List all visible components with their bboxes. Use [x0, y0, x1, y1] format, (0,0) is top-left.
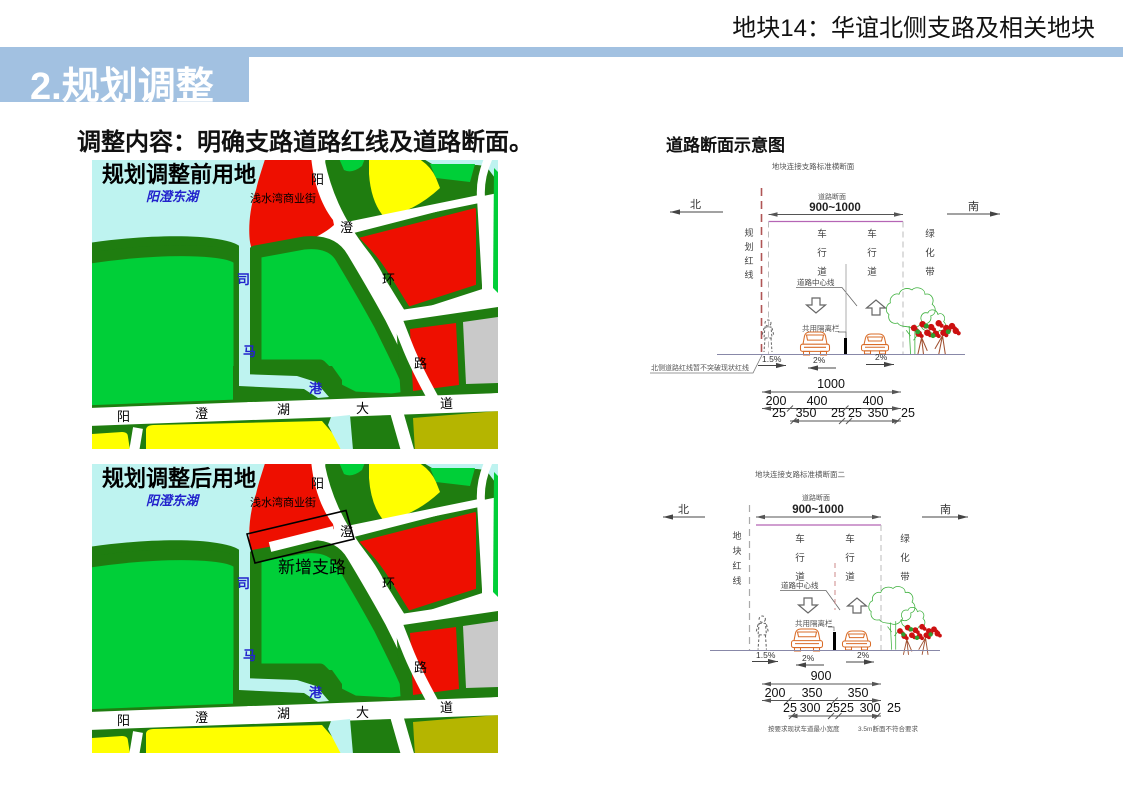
svg-text:行: 行	[845, 552, 855, 564]
svg-text:行: 行	[817, 247, 827, 259]
svg-text:900~1000: 900~1000	[809, 202, 861, 214]
svg-text:道: 道	[817, 266, 827, 278]
svg-text:司: 司	[237, 272, 250, 287]
svg-text:道路断面: 道路断面	[802, 493, 830, 502]
svg-text:道: 道	[845, 571, 855, 583]
svg-text:车: 车	[795, 533, 805, 545]
svg-text:2%: 2%	[875, 352, 888, 362]
svg-text:浅水湾商业街: 浅水湾商业街	[250, 495, 316, 509]
svg-text:南: 南	[940, 503, 951, 516]
svg-text:900~1000: 900~1000	[792, 504, 844, 516]
svg-text:道: 道	[440, 396, 453, 411]
svg-text:地块连接支路标准横断面: 地块连接支路标准横断面	[772, 161, 855, 171]
svg-text:澄: 澄	[340, 220, 353, 235]
svg-text:澄: 澄	[340, 524, 353, 539]
svg-text:湖: 湖	[277, 402, 290, 417]
svg-text:车: 车	[845, 533, 855, 545]
svg-text:25: 25	[840, 701, 854, 715]
svg-text:块: 块	[732, 545, 741, 556]
svg-text:300: 300	[800, 701, 821, 715]
svg-text:25: 25	[826, 701, 840, 715]
svg-text:车: 车	[817, 228, 827, 240]
svg-text:1.5%: 1.5%	[756, 650, 776, 660]
svg-text:25: 25	[901, 406, 915, 420]
svg-text:线: 线	[744, 269, 753, 280]
svg-text:25: 25	[772, 406, 786, 420]
svg-text:司: 司	[237, 576, 250, 591]
svg-text:港: 港	[309, 381, 323, 396]
svg-text:规: 规	[744, 228, 753, 238]
svg-text:200: 200	[765, 686, 786, 700]
svg-text:25: 25	[848, 406, 862, 420]
svg-text:路: 路	[414, 356, 427, 371]
svg-text:线: 线	[732, 575, 741, 586]
svg-text:浅水湾商业街: 浅水湾商业街	[250, 191, 316, 205]
svg-text:阳澄东湖: 阳澄东湖	[146, 493, 201, 508]
svg-text:环: 环	[382, 576, 395, 591]
svg-text:2%: 2%	[802, 653, 815, 663]
svg-text:划: 划	[744, 241, 753, 252]
svg-text:1.5%: 1.5%	[762, 354, 782, 364]
svg-text:行: 行	[867, 247, 877, 259]
svg-text:带: 带	[925, 267, 935, 278]
svg-text:阳澄东湖: 阳澄东湖	[146, 189, 201, 204]
svg-text:南: 南	[968, 200, 979, 213]
svg-text:绿: 绿	[900, 533, 910, 545]
svg-text:道路断面: 道路断面	[818, 192, 846, 201]
svg-text:道: 道	[867, 266, 877, 278]
svg-text:澄: 澄	[195, 710, 208, 725]
svg-text:2%: 2%	[857, 650, 870, 660]
svg-text:350: 350	[868, 406, 889, 420]
svg-text:路: 路	[414, 660, 427, 675]
svg-text:25: 25	[831, 406, 845, 420]
svg-text:1000: 1000	[817, 377, 845, 391]
svg-text:阳: 阳	[311, 172, 324, 187]
svg-text:地: 地	[732, 530, 741, 541]
svg-text:25: 25	[887, 701, 901, 715]
svg-text:道: 道	[440, 700, 453, 715]
svg-text:350: 350	[802, 686, 823, 700]
svg-text:规划调整后用地: 规划调整后用地	[102, 466, 256, 491]
svg-text:350: 350	[796, 406, 817, 420]
svg-text:北: 北	[678, 503, 689, 516]
svg-text:3.5m断面不符合要求: 3.5m断面不符合要求	[858, 724, 918, 733]
svg-text:道路中心线: 道路中心线	[781, 580, 819, 590]
svg-text:红: 红	[744, 255, 753, 266]
svg-text:阳: 阳	[311, 476, 324, 491]
svg-text:环: 环	[382, 272, 395, 287]
svg-text:带: 带	[900, 572, 910, 583]
svg-text:马: 马	[243, 344, 256, 359]
svg-text:道路中心线: 道路中心线	[797, 277, 835, 287]
svg-text:900: 900	[811, 669, 832, 683]
svg-text:绿: 绿	[925, 228, 935, 240]
svg-text:化: 化	[925, 247, 935, 259]
svg-text:规划调整前用地: 规划调整前用地	[102, 162, 256, 187]
svg-text:红: 红	[732, 560, 741, 571]
svg-text:车: 车	[867, 228, 877, 240]
svg-text:阳: 阳	[117, 713, 130, 728]
svg-text:化: 化	[900, 552, 910, 564]
svg-text:北侧道路红线暂不突破现状红线: 北侧道路红线暂不突破现状红线	[651, 363, 749, 372]
svg-text:行: 行	[795, 552, 805, 564]
svg-text:北: 北	[690, 198, 701, 211]
svg-text:马: 马	[243, 648, 256, 663]
svg-text:共用隔离栏: 共用隔离栏	[802, 323, 840, 333]
svg-text:阳: 阳	[117, 409, 130, 424]
svg-text:大: 大	[356, 401, 369, 416]
svg-text:地块连接支路标准横断面二: 地块连接支路标准横断面二	[755, 469, 845, 479]
svg-text:共用隔离栏: 共用隔离栏	[795, 618, 833, 628]
svg-text:新增支路: 新增支路	[278, 558, 346, 577]
svg-text:300: 300	[860, 701, 881, 715]
svg-text:350: 350	[848, 686, 869, 700]
svg-text:大: 大	[356, 705, 369, 720]
svg-text:按要求现状车道最小宽度: 按要求现状车道最小宽度	[768, 724, 840, 733]
svg-text:湖: 湖	[277, 706, 290, 721]
svg-text:澄: 澄	[195, 406, 208, 421]
svg-text:2%: 2%	[813, 355, 826, 365]
svg-text:25: 25	[783, 701, 797, 715]
svg-text:港: 港	[309, 685, 323, 700]
